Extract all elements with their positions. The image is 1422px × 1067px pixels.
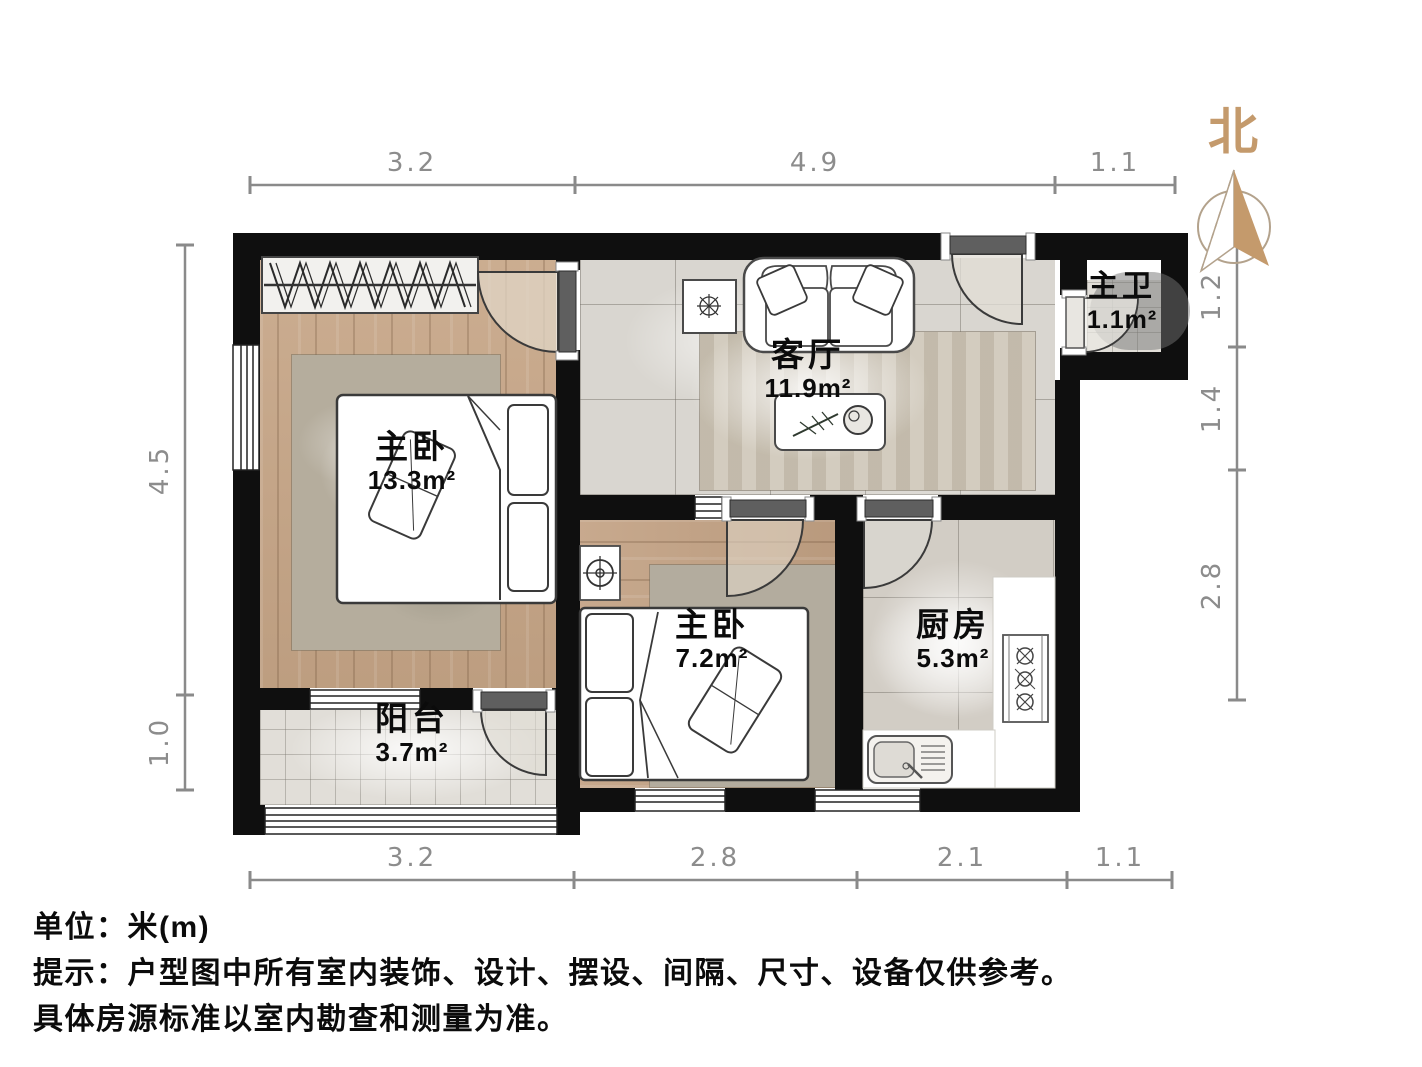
window-living-inner xyxy=(695,497,722,518)
room-name: 厨房 xyxy=(916,608,990,642)
room-area: 1.1m² xyxy=(1087,304,1157,336)
room-area: 5.3m² xyxy=(916,642,990,674)
dim-top-1: 3.2 xyxy=(387,148,437,178)
room-name: 主卫 xyxy=(1087,270,1157,304)
dim-right-1: 1.2 xyxy=(1197,271,1227,321)
room-area: 13.3m² xyxy=(368,464,456,496)
room-area: 3.7m² xyxy=(375,736,449,768)
room-area: 11.9m² xyxy=(765,372,852,404)
window-balcony-bottom xyxy=(265,808,557,834)
dim-left-2: 1.0 xyxy=(145,717,175,767)
north-label: 北 xyxy=(1208,92,1258,164)
room-name: 客厅 xyxy=(765,338,852,372)
window-kitchen-bottom xyxy=(815,790,920,811)
window-master-bedroom-left xyxy=(233,345,259,470)
dim-bottom-3: 2.1 xyxy=(937,843,987,873)
sink-icon xyxy=(868,736,952,783)
dim-bottom-2: 2.8 xyxy=(690,843,740,873)
footer-notes: 单位：米(m) 提示：户型图中所有室内装饰、设计、摆设、间隔、尺寸、设备仅供参考… xyxy=(33,905,1073,1043)
door-entrance xyxy=(941,233,1035,324)
door-kitchen xyxy=(857,497,941,588)
room-label-master-bath: 主卫 1.1m² xyxy=(1087,270,1157,336)
room-label-living-room: 客厅 11.9m² xyxy=(765,338,852,404)
unit-note: 单位：米(m) xyxy=(33,905,1073,951)
floorplan-page: 主卧 13.3m² 客厅 11.9m² 主卫 1.1m² 主卧 7.2m² 厨房… xyxy=(0,0,1422,1067)
dim-top-2: 4.9 xyxy=(790,148,840,178)
room-label-master-bedroom: 主卧 13.3m² xyxy=(368,430,456,496)
wardrobe-icon xyxy=(262,257,478,313)
dim-bottom-1: 3.2 xyxy=(387,843,437,873)
room-label-balcony: 阳台 3.7m² xyxy=(375,702,449,768)
light-symbol-icon xyxy=(580,546,620,600)
room-label-second-bedroom: 主卧 7.2m² xyxy=(675,608,749,674)
dim-left-1: 4.5 xyxy=(145,445,175,495)
room-area: 7.2m² xyxy=(675,642,749,674)
room-name: 主卧 xyxy=(368,430,456,464)
stove-icon xyxy=(1003,635,1048,722)
disclaimer-note2: 具体房源标准以室内勘查和测量为准。 xyxy=(33,997,1073,1043)
door-balcony xyxy=(473,690,555,775)
room-name: 主卧 xyxy=(675,608,749,642)
window-second-bedroom-bottom xyxy=(635,790,725,811)
room-name: 阳台 xyxy=(375,702,449,736)
dim-right-2: 1.4 xyxy=(1197,383,1227,433)
door-second-bedroom xyxy=(722,497,814,596)
dim-top-3: 1.1 xyxy=(1090,148,1140,178)
plant-frame-icon xyxy=(683,280,736,333)
room-label-kitchen: 厨房 5.3m² xyxy=(916,608,990,674)
dim-bottom-4: 1.1 xyxy=(1095,843,1145,873)
dim-right-3: 2.8 xyxy=(1197,560,1227,610)
door-master-bedroom xyxy=(478,262,578,360)
bed-master-icon xyxy=(337,395,556,603)
north-compass-icon xyxy=(1198,170,1270,271)
disclaimer-note: 提示：户型图中所有室内装饰、设计、摆设、间隔、尺寸、设备仅供参考。 xyxy=(33,951,1073,997)
